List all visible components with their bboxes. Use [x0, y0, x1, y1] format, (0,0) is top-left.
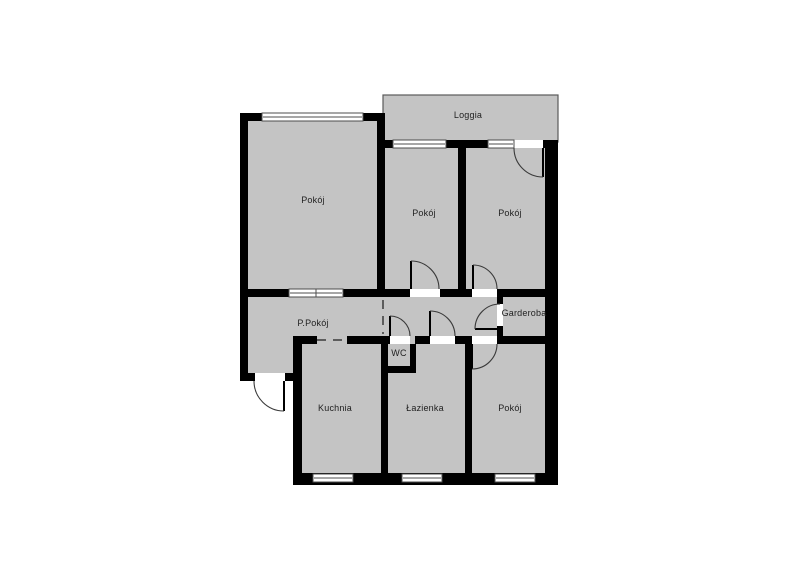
wall-entry-block-left: [240, 373, 255, 381]
wall-divider-midright: [458, 148, 466, 289]
label-lazienka: Łazienka: [406, 403, 444, 413]
window-room-bottom: [495, 474, 535, 482]
label-garderoba: Garderoba: [502, 308, 547, 318]
wall-divider-kitchen-bath: [381, 344, 388, 473]
label-room-top-right: Pokój: [498, 208, 522, 218]
wall-hall-bottom-seg1: [297, 336, 317, 344]
window-room-top-left: [262, 113, 363, 121]
floorplan-canvas: Loggia Pokój Pokój Pokój P.Pokój Gardero…: [0, 0, 800, 585]
label-room-top-left: Pokój: [301, 195, 325, 205]
label-room-bottom-right: Pokój: [498, 403, 522, 413]
wall-kitchen-left: [293, 336, 302, 485]
wall-garderoba-left-bottom: [497, 326, 503, 336]
wall-hall-bottom-seg2: [347, 336, 390, 344]
wall-hall-bottom-seg3: [415, 336, 430, 344]
wall-entry-block-right: [285, 373, 302, 381]
window-room-top-middle: [393, 140, 446, 148]
apartment-floor: [240, 113, 558, 485]
window-kitchen: [313, 474, 353, 482]
wall-right-outer: [545, 140, 558, 485]
label-room-top-middle: Pokój: [412, 208, 436, 218]
wall-hall-top-seg4: [497, 289, 545, 297]
door-gap-balcony: [514, 140, 543, 148]
door-gap-room-right: [472, 289, 497, 297]
wall-hall-top-seg2: [343, 289, 410, 297]
label-kuchnia: Kuchnia: [318, 403, 352, 413]
wall-hall-top-seg3: [440, 289, 472, 297]
label-hallway: P.Pokój: [297, 318, 328, 328]
door-arc-entrance: [254, 381, 284, 411]
wall-garderoba-left-top: [497, 297, 503, 304]
door-gap-wc: [390, 336, 410, 344]
window-bathroom: [402, 474, 442, 482]
door-gap-room-middle: [410, 289, 440, 297]
door-gap-bathroom: [430, 336, 455, 344]
wall-hall-bottom-seg4: [455, 336, 472, 344]
floorplan-svg: Loggia Pokój Pokój Pokój P.Pokój Gardero…: [0, 0, 800, 585]
wall-loggia-seg2: [446, 140, 488, 148]
wall-loggia-seg1: [383, 140, 393, 148]
label-loggia: Loggia: [454, 110, 482, 120]
wall-hall-bottom-seg5: [497, 336, 545, 344]
window-interior-hall: [289, 289, 343, 297]
window-room-top-right: [488, 140, 514, 148]
wall-divider-bath-room: [465, 344, 472, 473]
door-gap-room-bottom: [472, 336, 497, 344]
wall-left-outer: [240, 113, 248, 381]
door-gap-entrance: [255, 373, 285, 381]
label-wc: WC: [391, 348, 407, 358]
wall-hall-top-seg1: [240, 289, 289, 297]
